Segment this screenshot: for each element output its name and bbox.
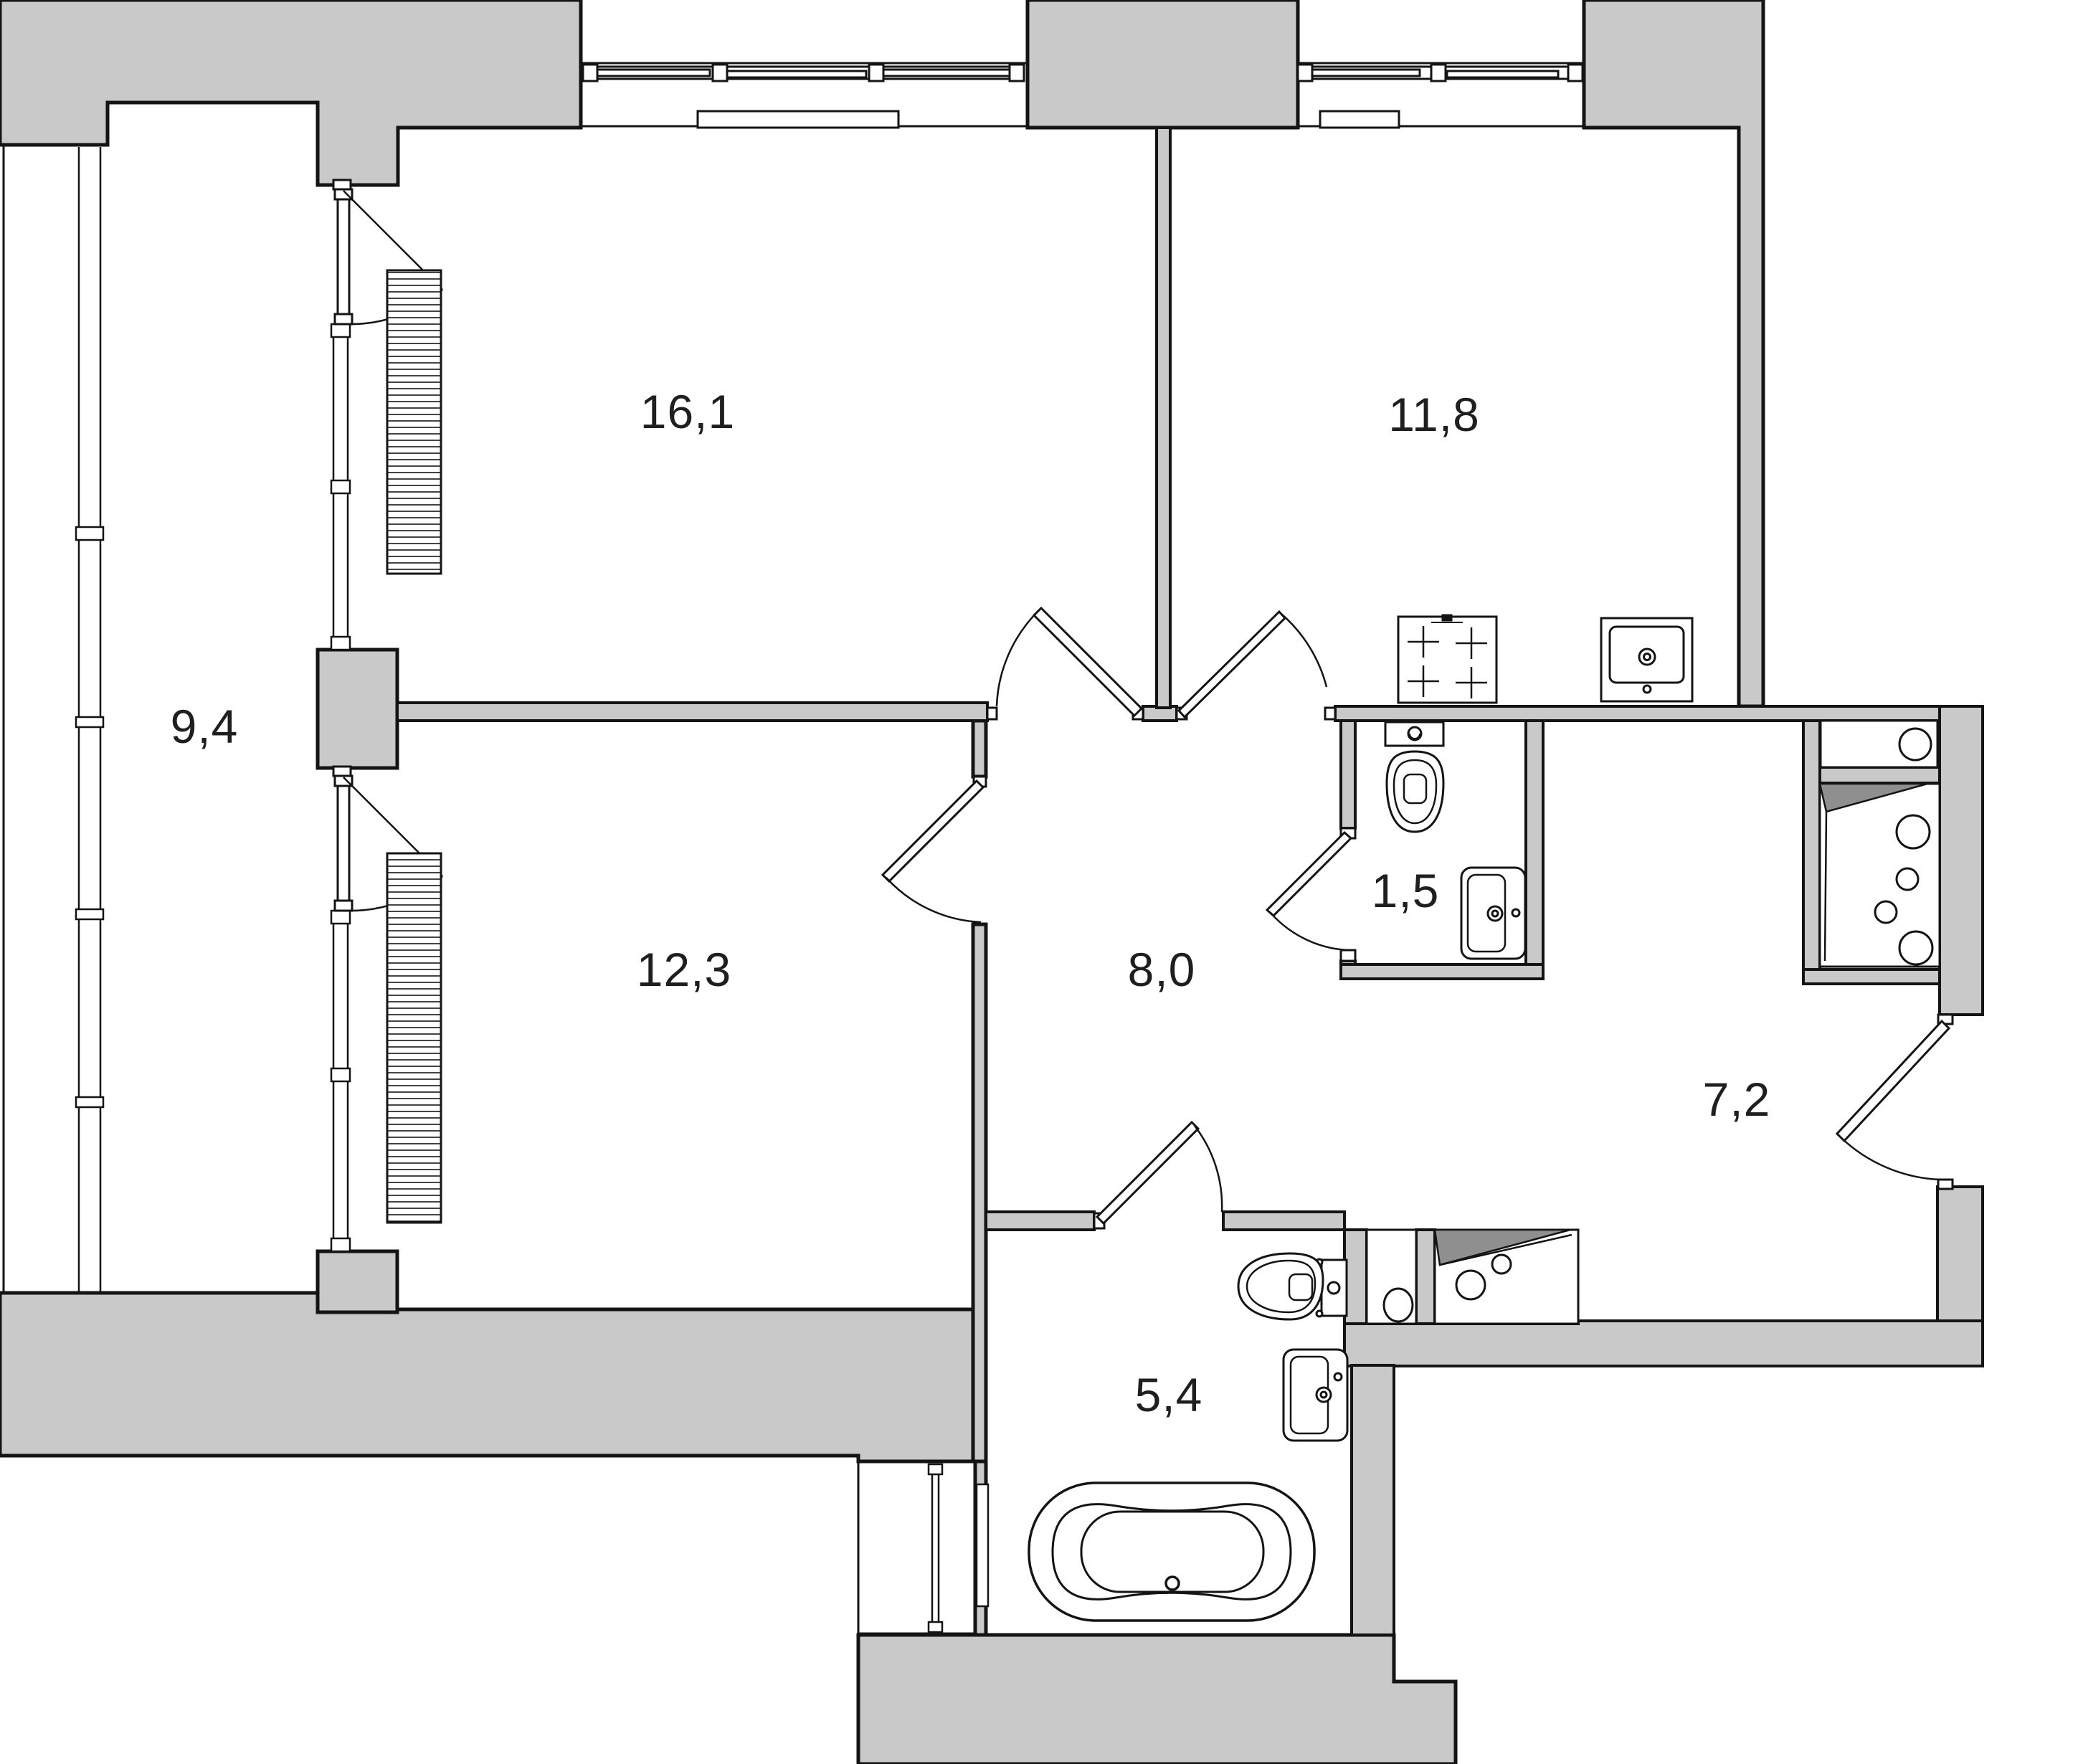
floor-plan-drawing (0, 0, 2078, 1764)
floor-plan: 16,1 11,8 9,4 12,3 8,0 1,5 7,2 5,4 (0, 0, 2078, 1764)
room-label-bedroom: 12,3 (637, 942, 731, 997)
room-label-balcony: 9,4 (171, 699, 239, 754)
towel-rail-icon (977, 1484, 988, 1606)
door-kitchen (1177, 612, 1335, 719)
radiator-living-room (698, 111, 898, 128)
wc-sink-icon (1461, 868, 1525, 959)
window-kitchen (1298, 65, 1583, 81)
door-bathroom (1094, 1122, 1222, 1228)
door-bedroom (883, 777, 986, 922)
utility-washer-icon (1820, 784, 1940, 967)
shaft-door (929, 1464, 942, 1632)
room-label-wc: 1,5 (1372, 863, 1440, 918)
room-label-bathroom: 5,4 (1135, 1367, 1203, 1422)
radiator-kitchen (1320, 111, 1399, 128)
room-label-hallway: 8,0 (1128, 942, 1196, 997)
door-wc (1267, 828, 1355, 961)
bathroom-toilet-icon (1238, 1253, 1347, 1319)
wc-toilet-icon (1385, 722, 1443, 832)
stove-icon (1398, 615, 1496, 703)
balcony-outer-glazing (76, 147, 103, 1293)
laundry-niche-sink-icon (1367, 1230, 1416, 1324)
wardrobe-living-room (387, 270, 441, 574)
kitchen-sink-icon (1601, 618, 1692, 701)
room-label-corridor: 7,2 (1703, 1072, 1771, 1127)
door-entrance (1837, 1015, 1953, 1189)
door-living-room (987, 608, 1143, 719)
laundry-niche-washer-icon (1435, 1230, 1578, 1324)
window-living-room (583, 65, 1024, 81)
bathroom-sink-icon (1284, 1350, 1347, 1441)
room-label-kitchen: 11,8 (1388, 387, 1480, 442)
room-label-living-room: 16,1 (640, 384, 735, 439)
bathtub-icon (1029, 1483, 1314, 1621)
wardrobe-bedroom (387, 853, 441, 1223)
utility-counter-sink-icon (1821, 721, 1937, 767)
